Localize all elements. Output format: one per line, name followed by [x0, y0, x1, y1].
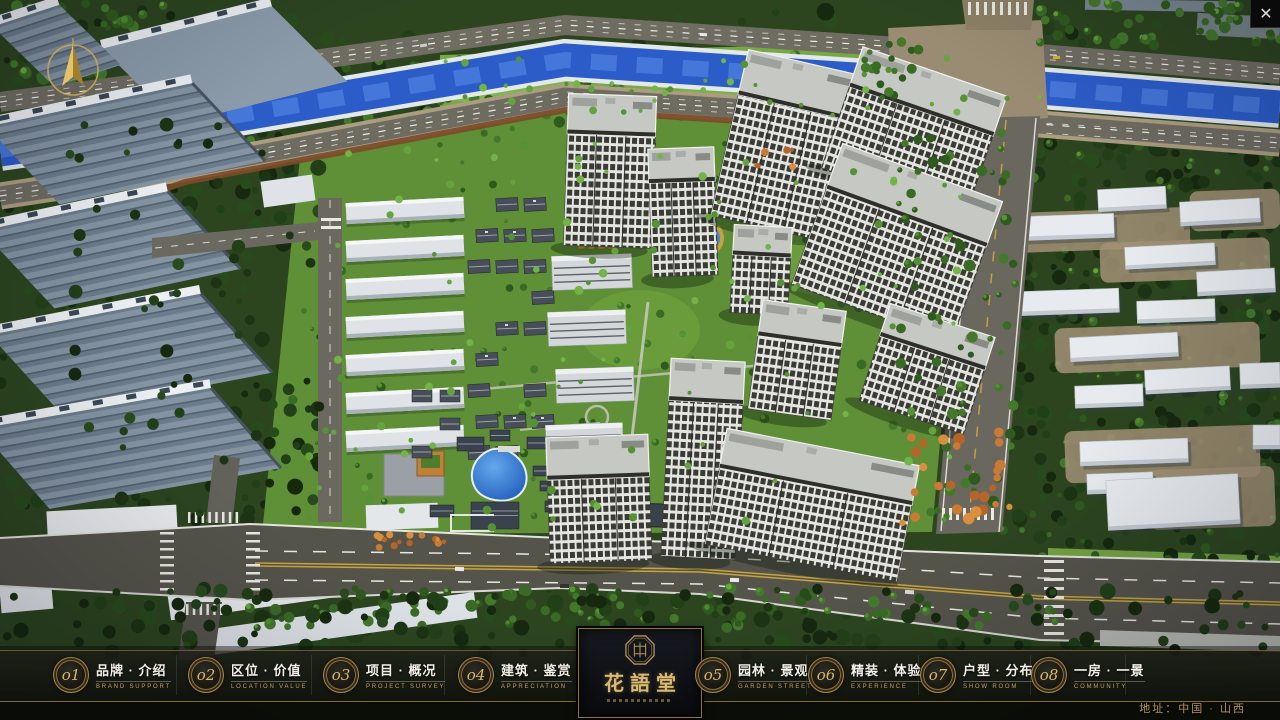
- nav-label-zh: 品牌 · 介绍: [96, 660, 171, 679]
- presentation-stage: ✕ o1 品牌 · 介绍 BRAND SUPPORT o2 区位 · 价值 LO…: [0, 0, 1280, 720]
- logo-huayutang[interactable]: 花語堂: [578, 628, 702, 718]
- masterplan-render: [0, 0, 1280, 720]
- nav-label-divider: [96, 681, 171, 682]
- nav-label-en: BRAND SUPPORT: [96, 684, 171, 690]
- nav-label-zh: 精装 · 体验: [851, 660, 922, 679]
- nav-label-en: APPRECIATION: [501, 684, 572, 690]
- close-button[interactable]: ✕: [1250, 0, 1280, 28]
- nav-label-en: COMMUNITY: [1074, 684, 1145, 690]
- nav-label-divider: [231, 681, 307, 682]
- nav-label-en: GARDEN STREET: [738, 684, 812, 690]
- nav-separator: [176, 655, 177, 695]
- nav-label-en: EXPERIENCE: [851, 684, 922, 690]
- nav-item-brand-intro[interactable]: o1 品牌 · 介绍 BRAND SUPPORT: [53, 657, 171, 693]
- nav-number-badge: o7: [920, 657, 956, 693]
- nav-number-badge: o4: [458, 657, 494, 693]
- nav-item-community[interactable]: o8 一房 · 一景 COMMUNITY: [1031, 657, 1145, 693]
- logo-title: 花語堂: [598, 667, 682, 696]
- nav-number-badge: o8: [1031, 657, 1067, 693]
- nav-item-floorplans[interactable]: o7 户型 · 分布 SHOW ROOM: [920, 657, 1034, 693]
- compass-icon: [38, 30, 108, 104]
- nav-label-divider: [851, 681, 922, 682]
- project-address: 地址：中国 · 山西: [1139, 700, 1246, 716]
- nav-separator: [311, 655, 312, 695]
- nav-item-garden[interactable]: o5 园林 · 景观 GARDEN STREET: [695, 657, 812, 693]
- nav-label-zh: 园林 · 景观: [738, 660, 812, 679]
- nav-label-en: SHOW ROOM: [963, 684, 1034, 690]
- nav-item-architecture[interactable]: o4 建筑 · 鉴赏 APPRECIATION: [458, 657, 572, 693]
- nav-label-zh: 区位 · 价值: [231, 660, 307, 679]
- nav-label-divider: [963, 681, 1034, 682]
- nav-label-zh: 项目 · 概况: [366, 660, 445, 679]
- nav-item-project-survey[interactable]: o3 项目 · 概况 PROJECT SURVEY: [323, 657, 445, 693]
- logo-caption-line: [607, 699, 673, 702]
- nav-label-en: PROJECT SURVEY: [366, 684, 445, 690]
- nav-label-zh: 一房 · 一景: [1074, 660, 1145, 679]
- nav-label-divider: [501, 681, 572, 682]
- nav-label-divider: [1074, 681, 1145, 682]
- nav-label-zh: 建筑 · 鉴赏: [501, 660, 572, 679]
- nav-label-divider: [738, 681, 812, 682]
- nav-number-badge: o6: [808, 657, 844, 693]
- nav-label-divider: [366, 681, 445, 682]
- nav-item-location-value[interactable]: o2 区位 · 价值 LOCATION VALUE: [188, 657, 307, 693]
- nav-number-badge: o1: [53, 657, 89, 693]
- nav-label-zh: 户型 · 分布: [963, 660, 1034, 679]
- nav-number-badge: o3: [323, 657, 359, 693]
- seal-emblem-icon: [625, 635, 655, 665]
- nav-number-badge: o5: [695, 657, 731, 693]
- nav-number-badge: o2: [188, 657, 224, 693]
- nav-label-en: LOCATION VALUE: [231, 684, 307, 690]
- nav-item-experience[interactable]: o6 精装 · 体验 EXPERIENCE: [808, 657, 922, 693]
